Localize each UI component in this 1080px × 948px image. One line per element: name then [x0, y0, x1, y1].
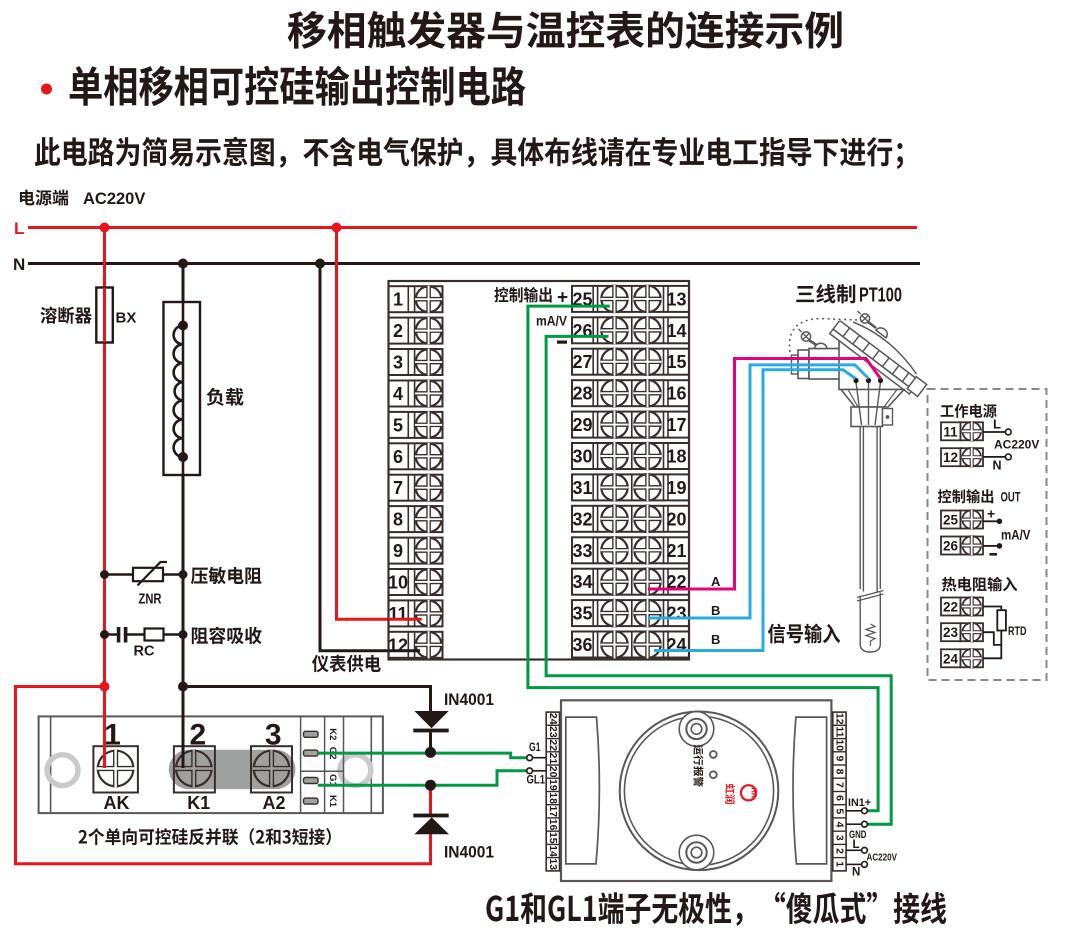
svg-text:AC220V: AC220V	[83, 190, 145, 208]
svg-text:N: N	[13, 255, 25, 274]
svg-text:A: A	[711, 574, 721, 589]
svg-text:3: 3	[834, 835, 846, 841]
svg-text:N: N	[852, 867, 860, 879]
svg-text:AC220V: AC220V	[867, 852, 898, 864]
svg-text:21: 21	[666, 541, 686, 561]
svg-text:RC: RC	[134, 644, 155, 660]
svg-text:8: 8	[834, 769, 846, 775]
svg-text:BX: BX	[116, 310, 137, 327]
svg-text:24: 24	[666, 635, 686, 655]
svg-text:27: 27	[572, 352, 592, 372]
svg-text:23: 23	[666, 604, 686, 624]
svg-text:17: 17	[666, 415, 686, 435]
svg-text:30: 30	[572, 447, 592, 467]
svg-text:20: 20	[547, 766, 559, 778]
svg-text:1: 1	[393, 290, 403, 310]
svg-text:16: 16	[666, 384, 686, 404]
svg-text:25: 25	[943, 513, 959, 528]
svg-text:mA/V: mA/V	[536, 313, 568, 329]
svg-text:11: 11	[834, 726, 846, 737]
svg-text:IN1+: IN1+	[848, 797, 871, 809]
svg-text:23: 23	[547, 726, 559, 738]
svg-text:PT100: PT100	[859, 285, 902, 307]
svg-text:B: B	[711, 603, 720, 618]
svg-text:22: 22	[943, 600, 958, 615]
svg-text:L: L	[993, 417, 1001, 432]
svg-text:6: 6	[834, 795, 846, 801]
svg-text:IN4001: IN4001	[444, 844, 494, 862]
svg-text:17: 17	[547, 805, 559, 817]
svg-text:15: 15	[547, 832, 559, 844]
svg-text:6: 6	[393, 447, 403, 467]
svg-text:36: 36	[572, 635, 592, 655]
svg-text:L: L	[14, 219, 24, 238]
svg-text:19: 19	[666, 478, 686, 498]
svg-text:13: 13	[666, 289, 686, 309]
svg-text:9: 9	[393, 541, 403, 561]
svg-text:34: 34	[572, 572, 592, 592]
svg-text:21: 21	[547, 753, 559, 765]
svg-text:19: 19	[547, 779, 559, 791]
svg-text:24: 24	[547, 713, 559, 725]
svg-text:12: 12	[834, 713, 846, 725]
svg-text:2: 2	[834, 848, 846, 854]
svg-text:2: 2	[393, 321, 403, 341]
svg-text:+: +	[987, 506, 995, 522]
svg-text:L: L	[853, 839, 860, 851]
svg-text:35: 35	[572, 604, 592, 624]
svg-text:N: N	[993, 459, 1002, 473]
svg-text:4: 4	[393, 384, 403, 404]
svg-text:4: 4	[834, 822, 846, 828]
svg-text:31: 31	[572, 478, 592, 498]
svg-text:G1: G1	[529, 742, 541, 754]
svg-text:5: 5	[834, 808, 846, 814]
svg-text:28: 28	[572, 384, 592, 404]
svg-text:A2: A2	[262, 793, 285, 813]
svg-text:K2: K2	[327, 728, 338, 740]
svg-text:20: 20	[666, 509, 686, 529]
svg-text:15: 15	[666, 352, 686, 372]
svg-text:13: 13	[547, 858, 559, 870]
svg-text:1: 1	[104, 719, 121, 752]
svg-text:9: 9	[834, 755, 846, 761]
svg-text:AK: AK	[104, 793, 130, 813]
svg-text:AC220V: AC220V	[994, 438, 1039, 452]
svg-text:11: 11	[388, 604, 407, 624]
svg-text:14: 14	[547, 845, 559, 857]
svg-text:ZNR: ZNR	[139, 592, 162, 608]
svg-text:33: 33	[572, 541, 592, 561]
svg-text:16: 16	[547, 819, 559, 831]
svg-text:1: 1	[834, 861, 846, 867]
svg-text:K1: K1	[327, 795, 338, 808]
svg-text:RTD: RTD	[1008, 624, 1027, 638]
svg-text:18: 18	[547, 792, 559, 804]
svg-text:GL1: GL1	[527, 775, 546, 787]
svg-text:23: 23	[943, 625, 959, 640]
svg-text:7: 7	[393, 478, 403, 498]
svg-text:12: 12	[388, 635, 408, 655]
svg-text:B: B	[711, 632, 720, 647]
svg-text:12: 12	[943, 450, 958, 465]
svg-text:2: 2	[190, 719, 207, 752]
svg-text:26: 26	[943, 539, 959, 554]
svg-text:32: 32	[572, 509, 592, 529]
svg-text:14: 14	[666, 321, 686, 341]
svg-text:K1: K1	[187, 793, 210, 813]
svg-text:8: 8	[393, 510, 403, 530]
svg-text:5: 5	[393, 415, 403, 435]
svg-text:24: 24	[943, 651, 959, 666]
svg-text:29: 29	[572, 415, 592, 435]
svg-text:10: 10	[834, 739, 846, 751]
svg-text:10: 10	[388, 572, 408, 592]
svg-text:22: 22	[547, 739, 559, 751]
svg-text:7: 7	[834, 782, 846, 788]
svg-text:mA/V: mA/V	[1001, 527, 1031, 543]
svg-text:11: 11	[943, 424, 958, 439]
svg-text:18: 18	[666, 447, 686, 467]
svg-text:OUT: OUT	[1001, 489, 1021, 505]
svg-text:HR: HR	[750, 787, 759, 798]
svg-text:IN4001: IN4001	[444, 691, 494, 709]
svg-text:3: 3	[393, 353, 403, 373]
svg-text:3: 3	[265, 719, 282, 752]
